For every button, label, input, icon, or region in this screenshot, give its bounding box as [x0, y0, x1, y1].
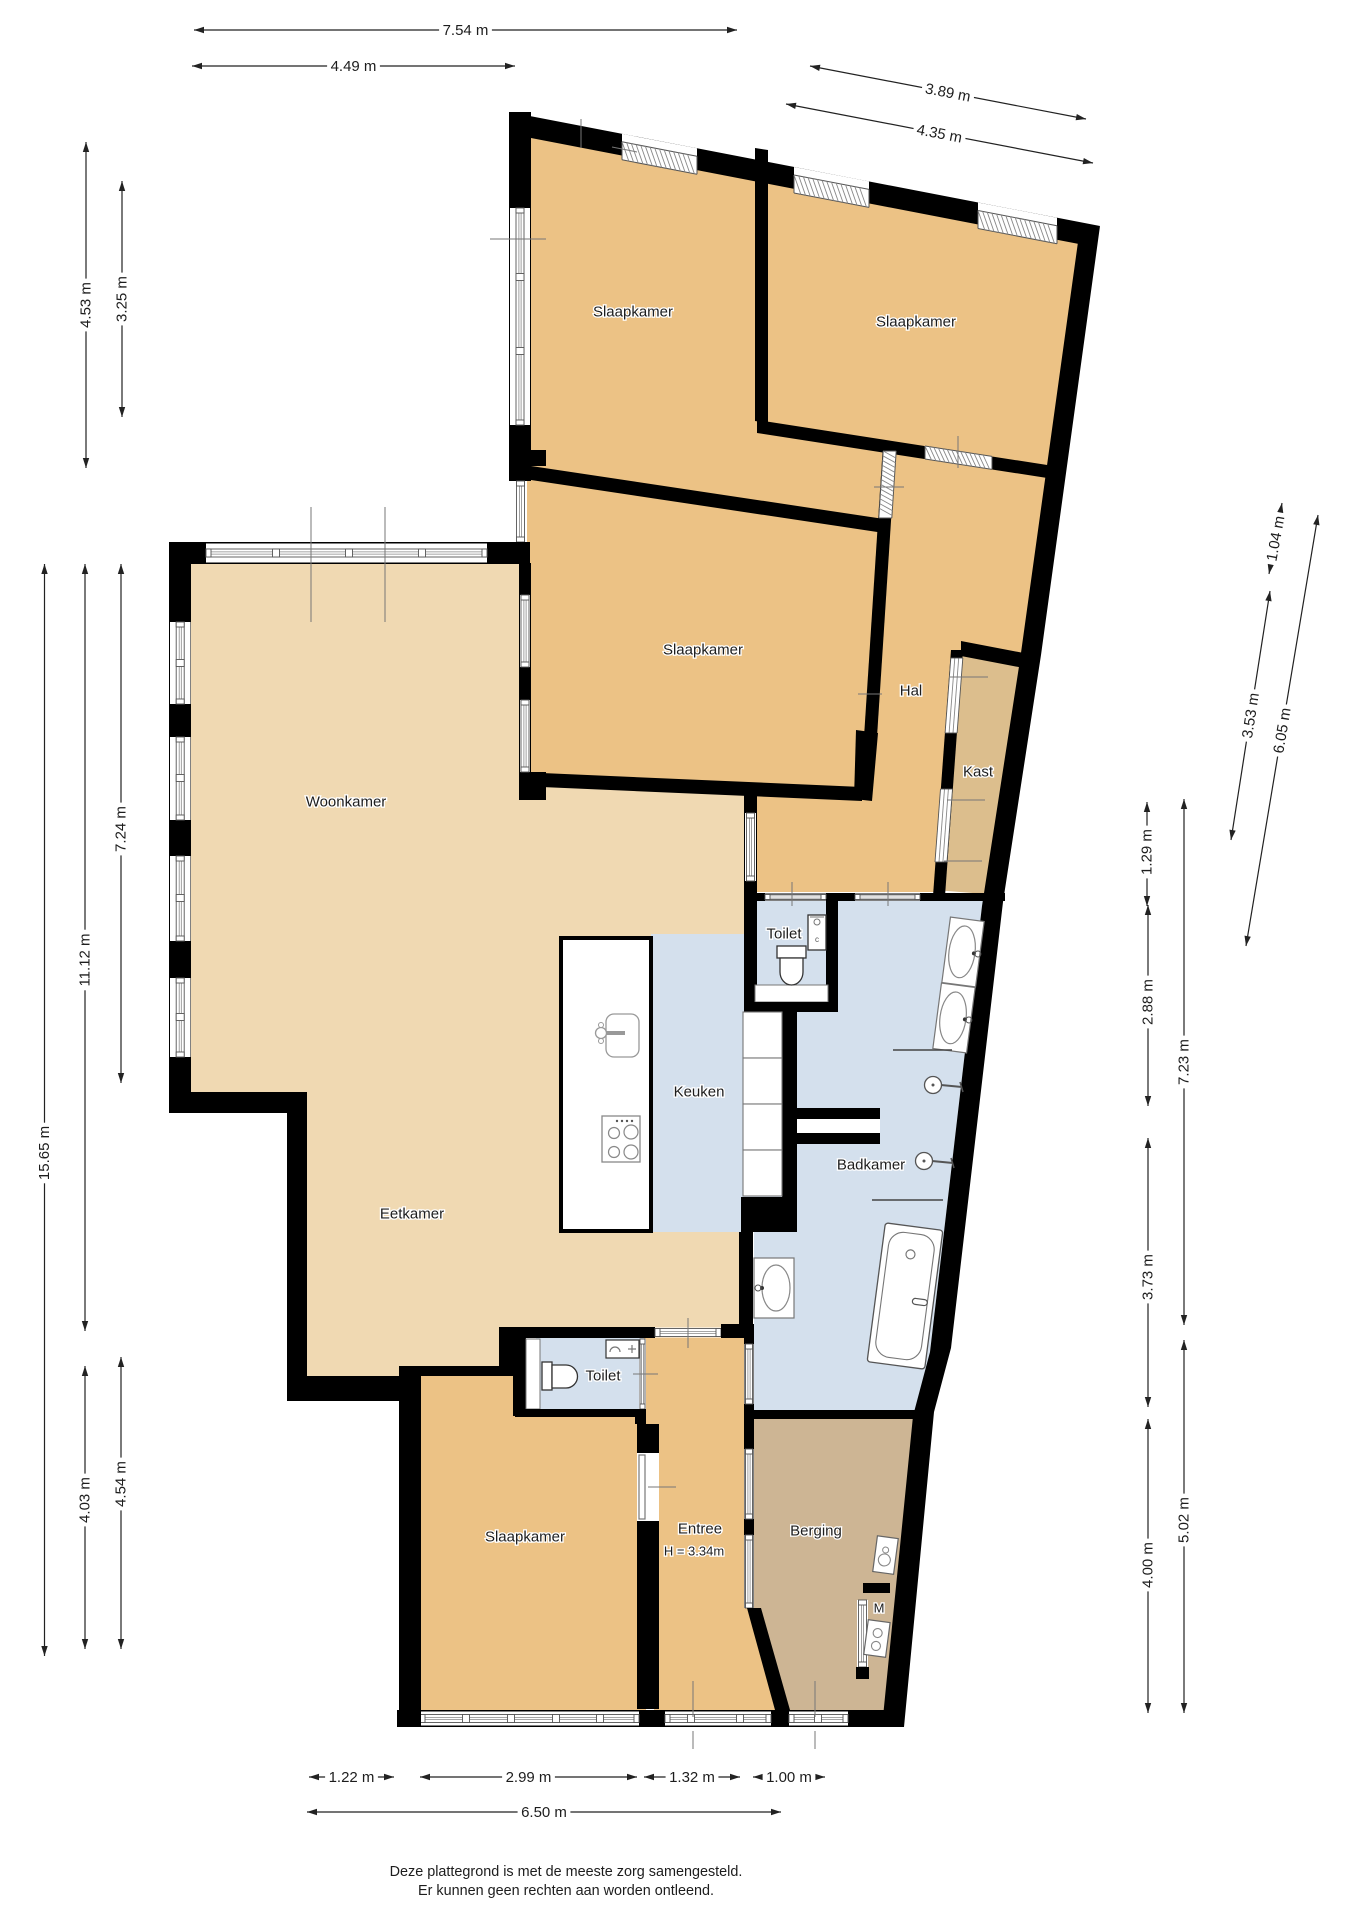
- svg-text:2.99 m: 2.99 m: [506, 1769, 552, 1786]
- svg-text:4.03 m: 4.03 m: [77, 1477, 94, 1523]
- svg-text:Woonkamer: Woonkamer: [306, 794, 387, 811]
- svg-text:7.54 m: 7.54 m: [443, 22, 489, 39]
- svg-text:Slaapkamer: Slaapkamer: [485, 1529, 565, 1546]
- svg-text:4.54 m: 4.54 m: [113, 1461, 130, 1507]
- svg-text:c: c: [815, 935, 819, 944]
- svg-text:M: M: [874, 1601, 885, 1616]
- svg-text:6.05 m: 6.05 m: [1270, 707, 1294, 755]
- svg-text:Hal: Hal: [900, 683, 923, 700]
- svg-text:1.22 m: 1.22 m: [329, 1769, 375, 1786]
- svg-text:1.04 m: 1.04 m: [1263, 515, 1288, 563]
- svg-text:15.65 m: 15.65 m: [36, 1126, 53, 1180]
- svg-text:Keuken: Keuken: [674, 1084, 725, 1101]
- svg-text:4.53 m: 4.53 m: [78, 282, 95, 328]
- svg-text:Slaapkamer: Slaapkamer: [876, 314, 956, 331]
- svg-text:Toilet: Toilet: [766, 926, 802, 943]
- svg-text:Deze plattegrond is met de mee: Deze plattegrond is met de meeste zorg s…: [390, 1864, 743, 1880]
- svg-text:Toilet: Toilet: [585, 1368, 621, 1385]
- svg-text:Slaapkamer: Slaapkamer: [593, 304, 673, 321]
- svg-text:11.12 m: 11.12 m: [77, 933, 94, 986]
- svg-text:3.73 m: 3.73 m: [1140, 1254, 1157, 1300]
- svg-text:6.50 m: 6.50 m: [521, 1804, 567, 1821]
- svg-text:Er kunnen geen rechten aan wor: Er kunnen geen rechten aan worden ontlee…: [418, 1883, 714, 1899]
- svg-text:Eetkamer: Eetkamer: [380, 1206, 444, 1223]
- svg-text:5.02 m: 5.02 m: [1176, 1497, 1193, 1543]
- svg-text:4.35 m: 4.35 m: [915, 121, 963, 146]
- svg-text:Kast: Kast: [963, 764, 994, 781]
- svg-text:1.32 m: 1.32 m: [669, 1769, 715, 1786]
- svg-text:Badkamer: Badkamer: [837, 1157, 905, 1174]
- svg-text:Berging: Berging: [790, 1523, 842, 1540]
- svg-text:2.88 m: 2.88 m: [1140, 979, 1157, 1025]
- svg-text:1.00 m: 1.00 m: [766, 1769, 812, 1786]
- svg-text:7.24 m: 7.24 m: [113, 806, 130, 852]
- svg-text:3.89 m: 3.89 m: [924, 80, 972, 105]
- svg-text:Slaapkamer: Slaapkamer: [663, 642, 743, 659]
- svg-text:3.25 m: 3.25 m: [114, 276, 131, 322]
- svg-text:4.49 m: 4.49 m: [331, 58, 377, 75]
- svg-text:H = 3.34m: H = 3.34m: [664, 1544, 724, 1559]
- svg-text:4.00 m: 4.00 m: [1140, 1542, 1157, 1588]
- svg-text:1.29 m: 1.29 m: [1139, 829, 1156, 875]
- svg-text:Entree: Entree: [678, 1521, 722, 1538]
- svg-text:7.23 m: 7.23 m: [1176, 1039, 1193, 1085]
- svg-text:3.53 m: 3.53 m: [1239, 692, 1263, 740]
